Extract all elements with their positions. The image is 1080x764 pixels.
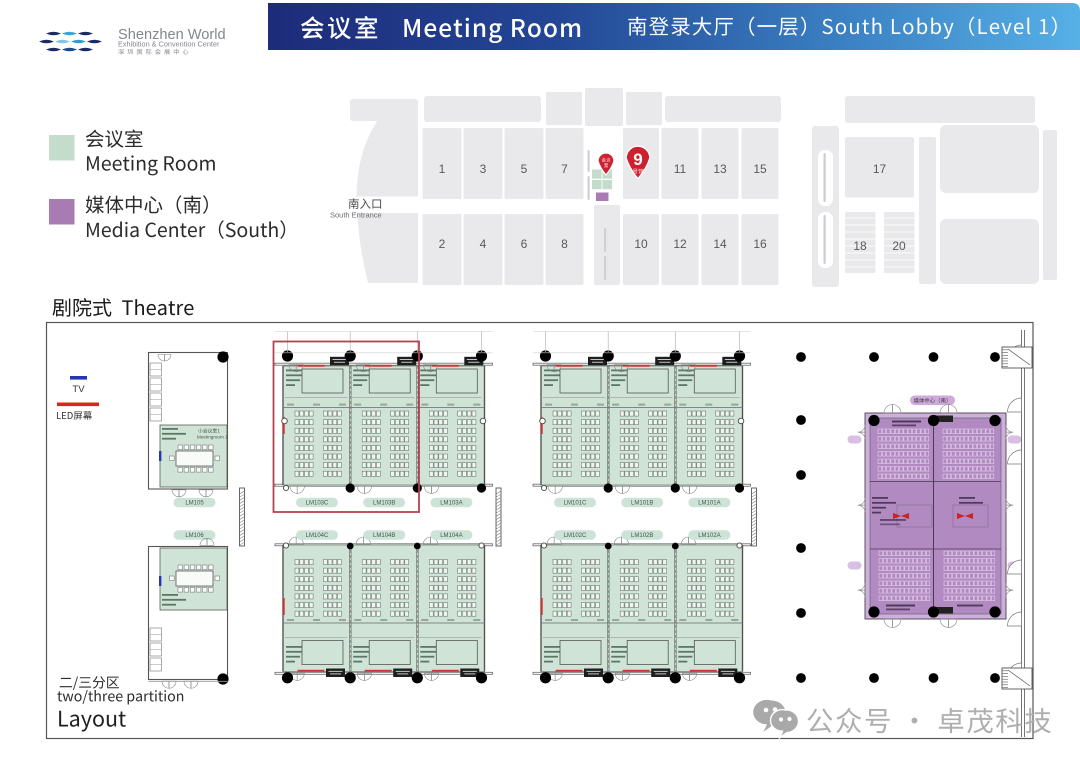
svg-text:LM101C: LM101C [564,501,587,507]
svg-text:LM101A: LM101A [698,501,720,507]
svg-text:4: 4 [480,237,487,251]
svg-text:LM103B: LM103B [373,501,395,507]
svg-text:LM103A: LM103A [440,501,462,507]
svg-text:8: 8 [561,237,568,251]
svg-text:LM105: LM105 [185,501,204,507]
svg-text:LM104A: LM104A [440,533,462,539]
svg-text:7: 7 [561,162,568,176]
svg-text:LM103C: LM103C [306,501,329,507]
svg-text:Meetingroom 1: Meetingroom 1 [197,435,228,440]
svg-text:15: 15 [753,162,767,176]
svg-text:10: 10 [634,237,648,251]
svg-text:2: 2 [439,237,446,251]
svg-text:LM104B: LM104B [373,533,395,539]
svg-text:14: 14 [713,237,727,251]
svg-text:1: 1 [439,162,446,176]
svg-text:13: 13 [713,162,727,176]
svg-text:16: 16 [753,237,767,251]
svg-text:9: 9 [633,150,642,169]
svg-text:12: 12 [673,237,687,251]
svg-text:20: 20 [892,239,906,253]
svg-text:LM101B: LM101B [631,501,653,507]
svg-text:Exhibition & Convention Center: Exhibition & Convention Center [118,40,220,49]
svg-text:LM104C: LM104C [306,533,329,539]
svg-text:LM102A: LM102A [698,533,720,539]
svg-text:LM102B: LM102B [631,533,653,539]
svg-text:3: 3 [480,162,487,176]
svg-text:TV: TV [72,384,85,395]
svg-text:South Entrance: South Entrance [330,211,382,220]
svg-text:6: 6 [521,237,528,251]
svg-text:LM106: LM106 [185,533,204,539]
svg-text:18: 18 [853,239,867,253]
svg-text:LM102C: LM102C [564,533,587,539]
svg-text:17: 17 [873,162,887,176]
svg-text:11: 11 [674,162,687,176]
svg-text:5: 5 [521,162,528,176]
